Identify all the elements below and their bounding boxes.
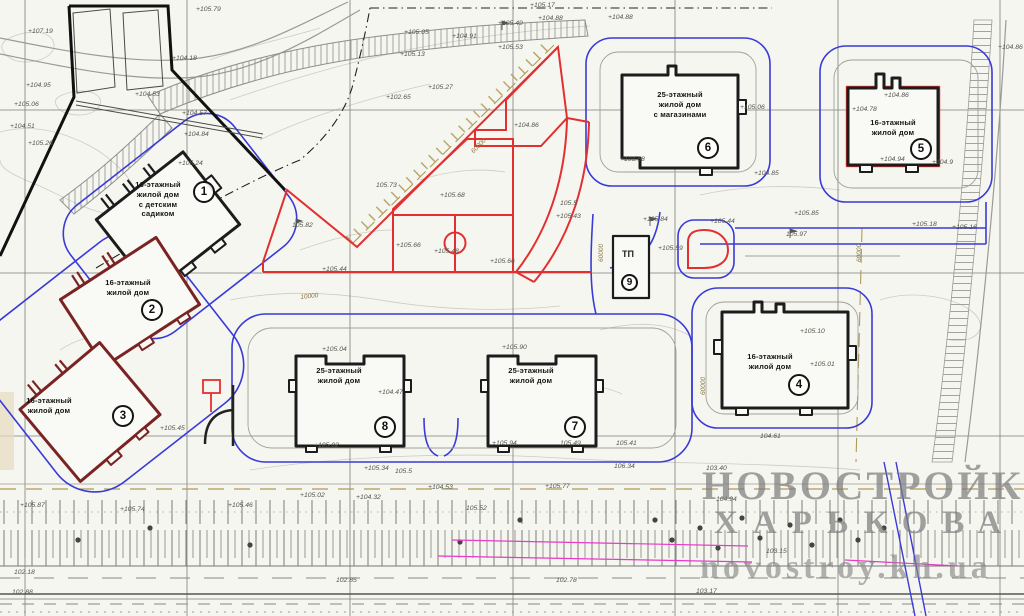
building-6-label: 25-этажный жилой дом с магазинами <box>634 90 726 119</box>
label-line: 16-этажный <box>850 118 936 128</box>
elevation-label: +103.68 <box>620 156 645 163</box>
elevation-label: 102.85 <box>336 577 357 584</box>
elevation-label: +105.74 <box>120 506 145 513</box>
elevation-label: +105.06 <box>14 101 39 108</box>
building-2-number-badge: 2 <box>141 299 163 321</box>
elevation-label: +105.46 <box>228 502 253 509</box>
elevation-label: +104.85 <box>754 170 779 177</box>
elevation-label: +105.13 <box>400 51 425 58</box>
watermark-line-1: НОВОСТРОЙКИ <box>702 462 1024 509</box>
elevation-label: +105.24 <box>178 160 203 167</box>
elevation-label: +104.86 <box>884 92 909 99</box>
label-line: жилой дом <box>82 288 174 298</box>
elevation-label: +104.18 <box>172 55 197 62</box>
elevation-label: +105.87 <box>20 502 45 509</box>
elevation-label: +105.59 <box>658 245 683 252</box>
elevation-label: +105.10 <box>800 328 825 335</box>
elevation-label: +105.17 <box>530 2 555 9</box>
elevation-label: 105.97 <box>786 231 807 238</box>
label-line: 25-этажный <box>634 90 726 100</box>
elevation-label: +104.84 <box>184 131 209 138</box>
label-line: жилой дом <box>112 190 204 200</box>
elevation-label: +105.94 <box>492 440 517 447</box>
site-plan-canvas: 16-этажный жилой дом с детским садиком 1… <box>0 0 1024 616</box>
elevation-label: +104.47 <box>378 389 403 396</box>
label-line: жилой дом <box>634 100 726 110</box>
red-turnaround <box>688 230 728 268</box>
elevation-label: 102.78 <box>556 577 577 584</box>
dimension-label: 60000 <box>856 244 863 262</box>
elevation-label: +104.78 <box>852 106 877 113</box>
elevation-label: 104.61 <box>760 433 781 440</box>
label-line: с магазинами <box>634 110 726 120</box>
building-5-label: 16-этажный жилой дом <box>850 118 936 138</box>
elevation-label: 103.17 <box>696 588 717 595</box>
elevation-label: +104.53 <box>135 91 160 98</box>
label-line: жилой дом <box>726 362 814 372</box>
elevation-label: 105.41 <box>616 440 637 447</box>
elevation-label: +105.43 <box>556 213 581 220</box>
label-line: 25-этажный <box>488 366 574 376</box>
label-line: садиком <box>112 209 204 219</box>
elevation-label: +104.88 <box>538 15 563 22</box>
building-2-label: 16-этажный жилой дом <box>82 278 174 298</box>
elevation-label: +105.90 <box>502 344 527 351</box>
building-4-number-badge: 4 <box>788 374 810 396</box>
elevation-label: 106.34 <box>614 463 635 470</box>
substation-label: ТП <box>622 249 634 259</box>
elevation-label: +105.68 <box>440 192 465 199</box>
dimension-label: 60000 <box>598 244 605 262</box>
elevation-label: +105.85 <box>794 210 819 217</box>
elevation-label: +105.84 <box>643 216 668 223</box>
elevation-label: +105.34 <box>364 465 389 472</box>
elevation-label: +105.49 <box>498 20 523 27</box>
elevation-label: +102.65 <box>386 94 411 101</box>
elevation-label: +105.02 <box>300 492 325 499</box>
label-line: 25-этажный <box>296 366 382 376</box>
building-8-number-badge: 8 <box>374 416 396 438</box>
elevation-label: +105.79 <box>196 6 221 13</box>
elevation-label: +105.06 <box>740 104 765 111</box>
elevation-label: +105.04 <box>322 346 347 353</box>
elevation-label: +105.77 <box>545 483 570 490</box>
label-line: 16-этажный <box>82 278 174 288</box>
label-line: жилой дом <box>6 406 92 416</box>
elevation-label: +105.66 <box>490 258 515 265</box>
red-sports-complex <box>263 47 592 282</box>
elevation-label: 105.73 <box>376 182 397 189</box>
elevation-label: +104.95 <box>26 82 51 89</box>
elevation-label: +105.48 <box>434 248 459 255</box>
building-6-number-badge: 6 <box>697 137 719 159</box>
building-1-label: 16-этажный жилой дом с детским садиком <box>112 180 204 219</box>
building-7-number-badge: 7 <box>564 416 586 438</box>
elevation-label: +105.18 <box>912 221 937 228</box>
label-line: жилой дом <box>850 128 936 138</box>
elevation-label: +104.9 <box>932 159 953 166</box>
elevation-label: +105.16 <box>952 224 977 231</box>
building-9-number-badge: 9 <box>621 274 638 291</box>
elevation-label: +105.53 <box>498 44 523 51</box>
elevation-label: +105.02 <box>314 442 339 449</box>
elevation-label: 105.52 <box>466 505 487 512</box>
elevation-label: +107.19 <box>28 28 53 35</box>
elevation-label: +105.44 <box>322 266 347 273</box>
elevation-label: +105.44 <box>710 218 735 225</box>
building-7-label: 25-этажный жилой дом <box>488 366 574 386</box>
label-line: жилой дом <box>296 376 382 386</box>
elevation-label: +104.51 <box>10 123 35 130</box>
elevation-label: +105.26 <box>28 140 53 147</box>
elevation-label: +104.53 <box>428 484 453 491</box>
building-5-number-badge: 5 <box>910 138 932 160</box>
elevation-label: 105.49 <box>560 440 581 447</box>
label-line: 16-этажный <box>726 352 814 362</box>
building-1-number-badge: 1 <box>193 181 215 203</box>
elevation-label: +104.88 <box>608 14 633 21</box>
watermark-url: novostroy.kh.ua <box>700 549 992 587</box>
elevation-label: +104.32 <box>356 494 381 501</box>
elevation-label: +105.27 <box>428 84 453 91</box>
label-line: жилой дом <box>488 376 574 386</box>
elevation-label: 105.82 <box>292 222 313 229</box>
label-line: 16-этажный <box>112 180 204 190</box>
label-line: 16-этажный <box>6 396 92 406</box>
label-line: с детским <box>112 200 204 210</box>
building-3-label: 16-этажный жилой дом <box>6 396 92 416</box>
elevation-label: +105.05 <box>404 29 429 36</box>
building-8-label: 25-этажный жилой дом <box>296 366 382 386</box>
dimension-label: 60000 <box>700 377 707 395</box>
elevation-label: 105.5 <box>395 468 412 475</box>
watermark-line-2: ХАРЬКОВА <box>714 505 1016 542</box>
elevation-label: +104.94 <box>880 156 905 163</box>
elevation-label: +104.57 <box>182 110 207 117</box>
elevation-label: +105.66 <box>396 242 421 249</box>
elevation-label: +105.45 <box>160 425 185 432</box>
elevation-label: +104.86 <box>514 122 539 129</box>
elevation-label: 102.88 <box>12 589 33 596</box>
elevation-label: 102.18 <box>14 569 35 576</box>
elevation-label: +104.91 <box>452 33 477 40</box>
elevation-label: +104.86 <box>998 44 1023 51</box>
elevation-label: 105.5 <box>560 200 577 207</box>
building-3-number-badge: 3 <box>112 405 134 427</box>
building-4-label: 16-этажный жилой дом <box>726 352 814 372</box>
